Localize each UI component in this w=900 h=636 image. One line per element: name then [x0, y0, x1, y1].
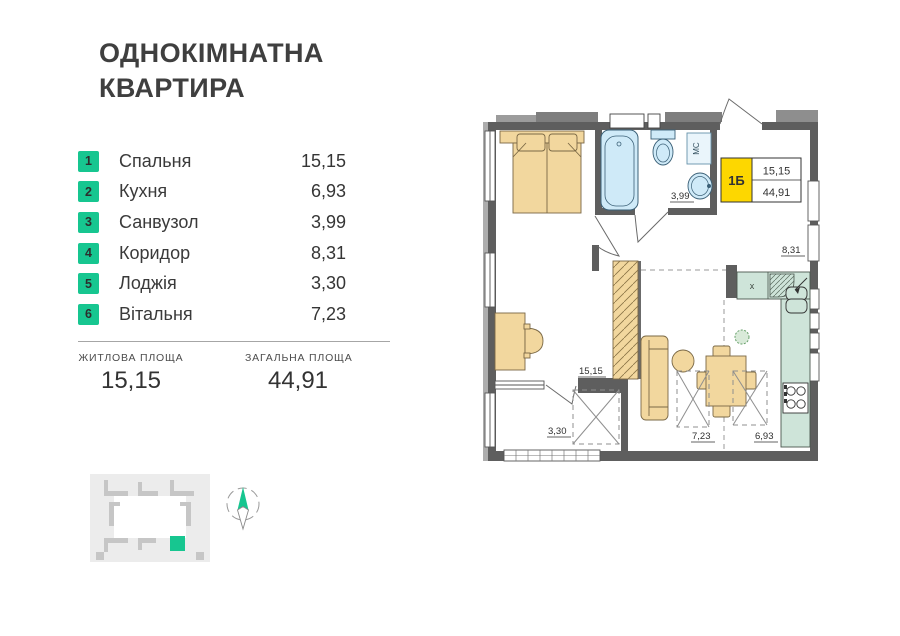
compass-icon: [219, 483, 267, 533]
floor-plan: МС 1Б 15,15 44,91: [480, 95, 825, 470]
desk: [495, 313, 543, 370]
entry-door: [720, 99, 762, 124]
legend-area: 6,93: [311, 181, 346, 202]
bedroom-area-label: 15,15: [579, 366, 603, 377]
living-area-value: 15,15: [78, 367, 184, 395]
toilet-bowl: [653, 139, 673, 165]
floorplan-page: { "title": { "line1": "ОДНОКІМНАТНА", "l…: [0, 0, 900, 636]
kitchen-counter: x: [737, 272, 810, 447]
vent-shafts: [610, 114, 660, 128]
ottoman: [672, 350, 694, 372]
legend-badge: 2: [78, 181, 99, 202]
living-zone-box: [677, 371, 709, 427]
dining-table: [706, 356, 746, 406]
dining-set: [697, 346, 756, 417]
unit-badge: 1Б 15,15 44,91: [721, 158, 801, 202]
building-locator: [88, 468, 212, 566]
page-title-line1: ОДНОКІМНАТНА: [99, 36, 324, 71]
legend-label: Вітальня: [119, 304, 193, 325]
page-title: ОДНОКІМНАТНА КВАРТИРА: [99, 36, 324, 106]
kitchen-cabinet-label: x: [750, 281, 755, 291]
bed: [500, 131, 584, 213]
legend-label: Лоджія: [119, 273, 177, 294]
bathroom-door: [635, 212, 668, 242]
bathroom-fixtures: МС: [601, 130, 712, 210]
legend-area: 3,99: [311, 212, 346, 233]
apartment-location-marker: [170, 536, 185, 551]
legend-row-kitchen: 2 Кухня 6,93: [78, 177, 346, 208]
legend-badge: 3: [78, 212, 99, 233]
legend-area: 8,31: [311, 243, 346, 264]
loggia-glazing: [504, 450, 600, 461]
unit-living-area: 15,15: [763, 166, 791, 178]
legend-area: 3,30: [311, 273, 346, 294]
page-title-line2: КВАРТИРА: [99, 71, 324, 106]
legend-badge: 1: [78, 151, 99, 172]
corridor-area-label: 8,31: [782, 245, 801, 256]
legend-row-corridor: 4 Коридор 8,31: [78, 238, 346, 269]
legend-row-loggia: 5 Лоджія 3,30: [78, 268, 346, 299]
legend-badge: 6: [78, 304, 99, 325]
washing-machine-label: МС: [692, 142, 701, 155]
desk-chair: [525, 328, 543, 354]
living-area-label: ЖИТЛОВА ПЛОЩА: [78, 352, 184, 364]
legend-row-bathroom: 3 Санвузол 3,99: [78, 207, 346, 238]
room-legend: 1 Спальня 15,15 2 Кухня 6,93 3 Санвузол …: [78, 146, 346, 330]
kitchen-area-label: 6,93: [755, 431, 774, 442]
unit-total-area: 44,91: [763, 187, 791, 199]
loggia-door: [546, 385, 576, 404]
loggia-zone-box: [573, 390, 619, 444]
legend-label: Спальня: [119, 151, 191, 172]
bathroom-area-label: 3,99: [671, 191, 690, 202]
total-area-summary: ЗАГАЛЬНА ПЛОЩА 44,91: [245, 352, 351, 395]
total-area-label: ЗАГАЛЬНА ПЛОЩА: [245, 352, 351, 364]
sink-tap: [707, 184, 711, 188]
unit-code: 1Б: [728, 173, 745, 188]
legend-area: 7,23: [311, 304, 346, 325]
sofa: [641, 336, 668, 420]
loggia-area-label: 3,30: [548, 426, 567, 437]
legend-label: Коридор: [119, 243, 190, 264]
legend-label: Кухня: [119, 181, 167, 202]
divider-line: [78, 341, 390, 342]
legend-label: Санвузол: [119, 212, 199, 233]
kitchen-sink: [786, 299, 807, 313]
legend-badge: 5: [78, 273, 99, 294]
legend-row-bedroom: 1 Спальня 15,15: [78, 146, 346, 177]
toilet-tank: [651, 130, 675, 139]
legend-area: 15,15: [301, 151, 346, 172]
wardrobe: [613, 261, 638, 379]
legend-badge: 4: [78, 243, 99, 264]
plant: [735, 330, 749, 344]
living-area-summary: ЖИТЛОВА ПЛОЩА 15,15: [78, 352, 184, 395]
legend-row-living: 6 Вітальня 7,23: [78, 299, 346, 330]
living-area-label-plan: 7,23: [692, 431, 711, 442]
compass-south-needle: [238, 507, 249, 530]
total-area-value: 44,91: [245, 367, 351, 395]
